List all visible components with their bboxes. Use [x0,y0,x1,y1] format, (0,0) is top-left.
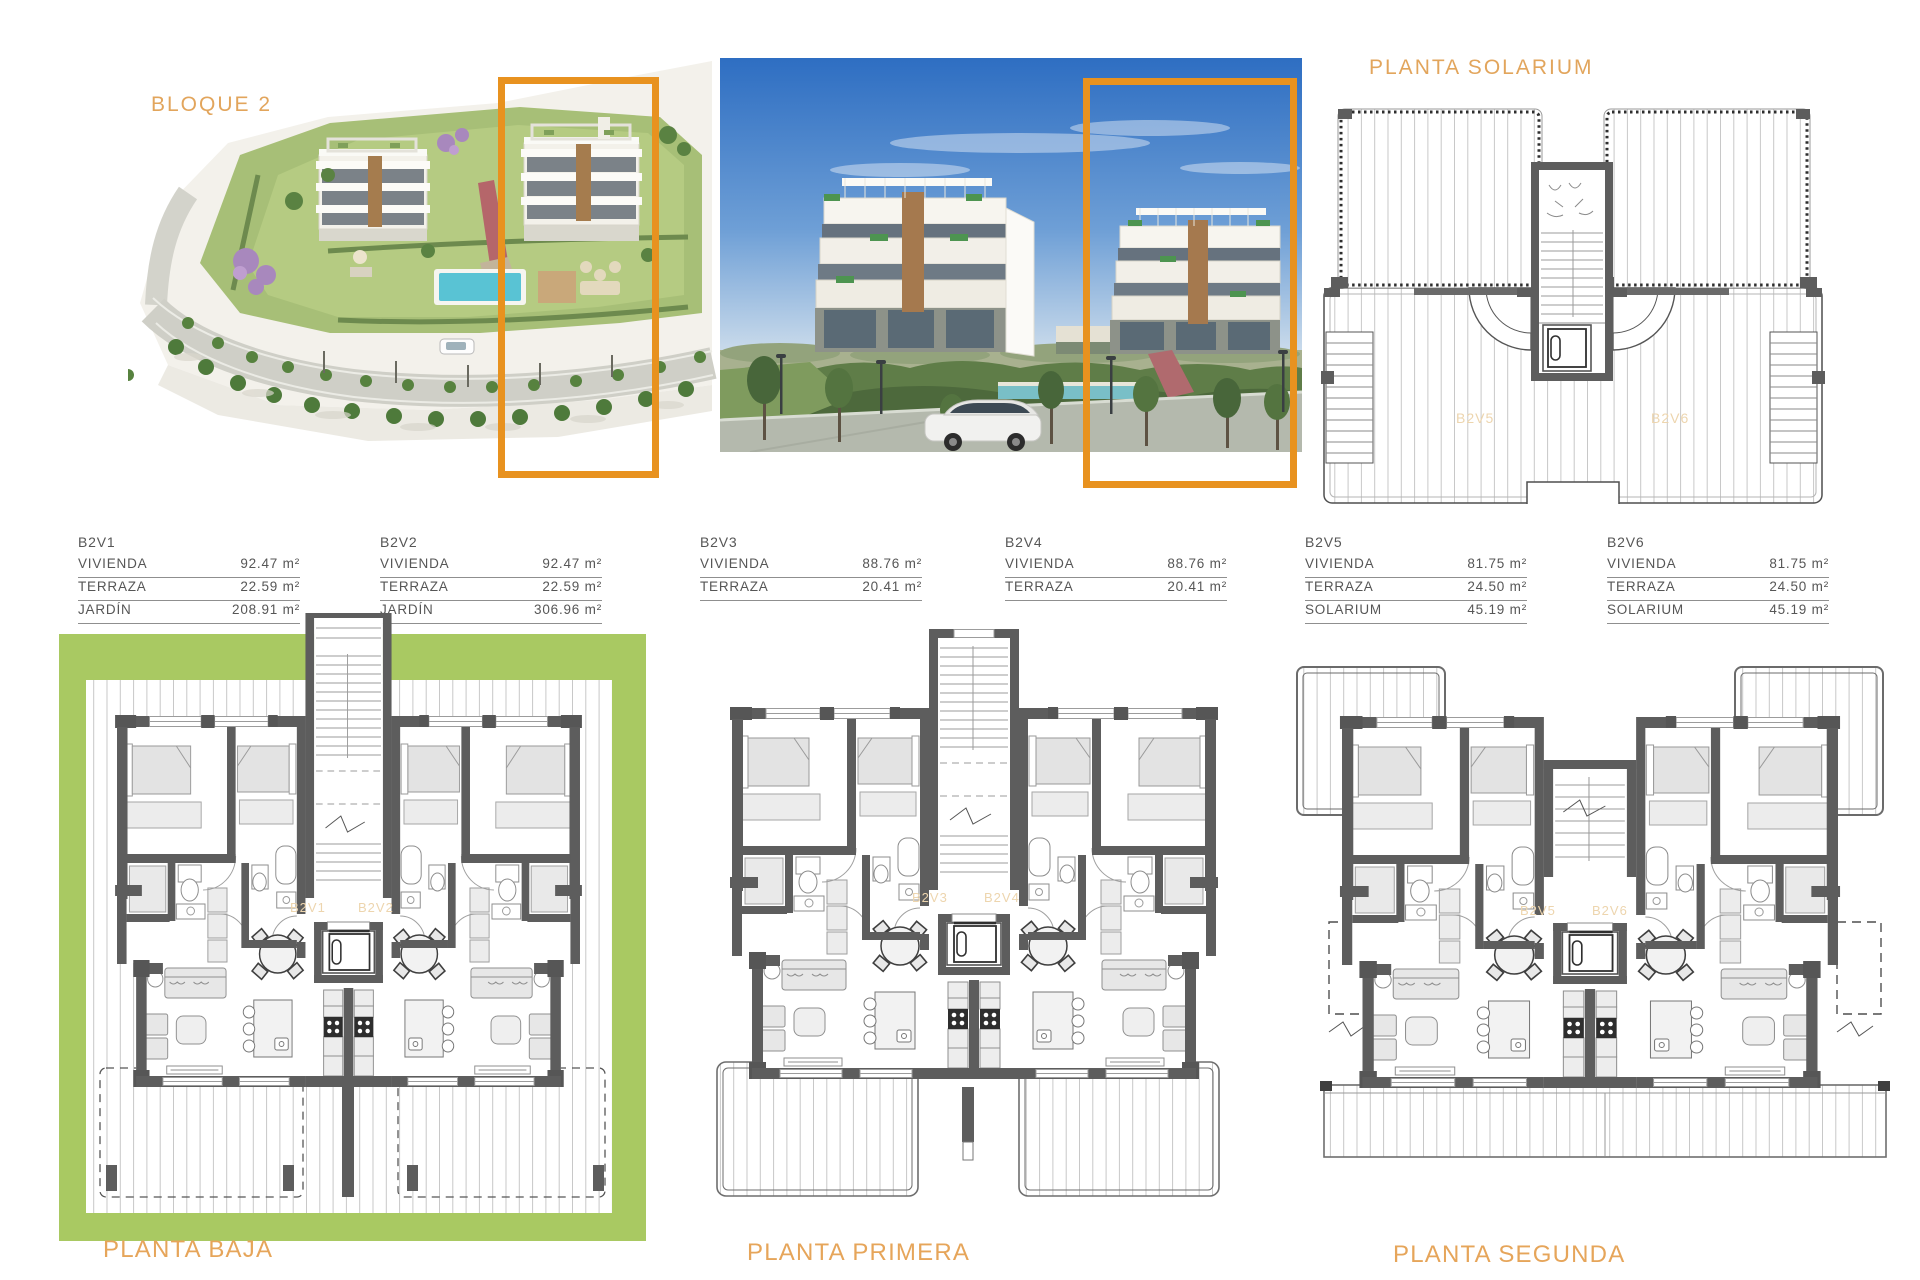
svg-text:B2V6: B2V6 [1592,903,1628,918]
svg-text:B2V4: B2V4 [984,890,1020,905]
svg-text:B2V5: B2V5 [1520,903,1556,918]
svg-text:B2V5: B2V5 [1456,410,1494,426]
svg-text:B2V1: B2V1 [290,900,326,915]
svg-text:B2V3: B2V3 [912,890,948,905]
svg-text:B2V6: B2V6 [1651,410,1689,426]
svg-text:B2V2: B2V2 [358,900,394,915]
